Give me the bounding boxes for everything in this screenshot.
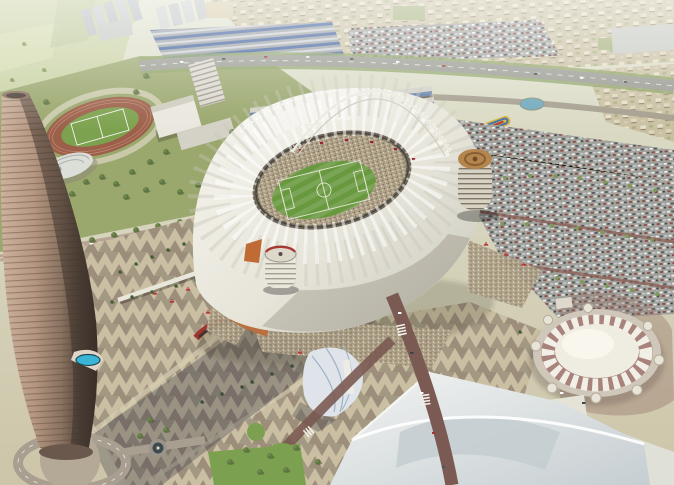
scene-image (0, 0, 674, 485)
aerial-render (0, 0, 674, 485)
cylinder-building-west (263, 246, 299, 295)
tower-base (39, 444, 93, 460)
atmospheric-haze (0, 0, 674, 130)
